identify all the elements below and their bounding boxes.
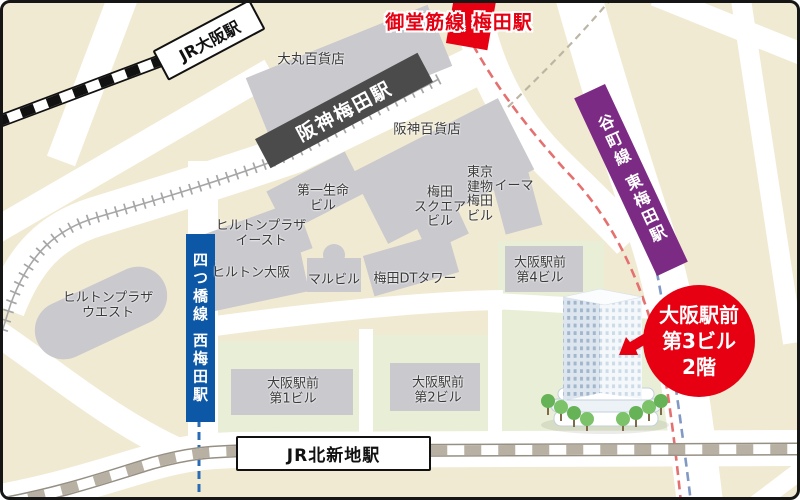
station-jr-kitashinchi: JR北新地駅 <box>236 436 431 471</box>
station-yotsubashi-nishi-umeda-label: 四つ橋線 西梅田駅 <box>190 252 211 404</box>
station-midosuji-umeda-label: 御堂筋線 梅田駅 <box>385 8 533 35</box>
hilton-plaza-west-building <box>25 257 176 369</box>
ekimae-2-building <box>390 363 480 411</box>
ekimae-4-building <box>505 246 583 292</box>
ekimae-1-building <box>231 369 353 415</box>
destination-label: 大阪駅前 第3ビル 2階 <box>659 302 739 380</box>
destination-callout: 大阪駅前 第3ビル 2階 <box>643 285 755 397</box>
station-yotsubashi-nishi-umeda: 四つ橋線 西梅田駅 <box>186 234 215 422</box>
maru-building <box>307 258 361 292</box>
station-jr-kitashinchi-label: JR北新地駅 <box>287 441 380 466</box>
umeda-access-map: JR大阪駅 御堂筋線 梅田駅 阪神梅田駅 谷町線 東梅田駅 四つ橋線 西梅田駅 … <box>0 0 800 500</box>
